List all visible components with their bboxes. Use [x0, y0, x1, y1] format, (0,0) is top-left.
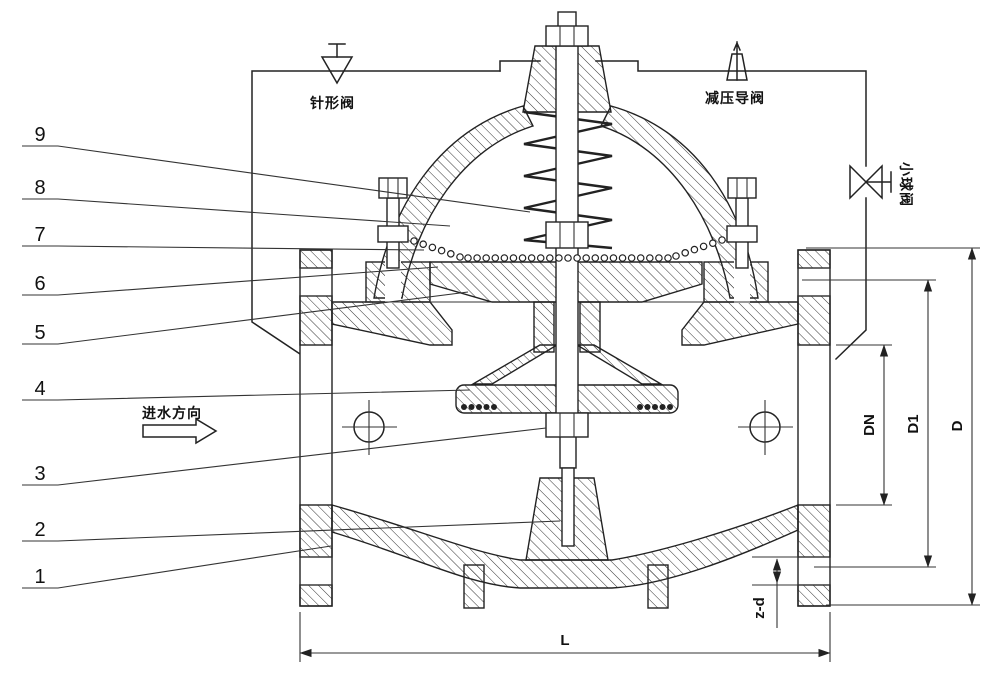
part-leaders: 9 8 7 6 5 4 3 2 1: [22, 124, 560, 588]
body-upper-wall-right: [682, 302, 798, 345]
body-left-rib: [464, 565, 484, 608]
needle-valve-icon: [322, 44, 352, 83]
pilot-valve-label: 减压导阀: [705, 90, 765, 106]
ball-valve-icon: [850, 166, 891, 198]
leader-2: [22, 521, 560, 541]
funnel-right: [577, 345, 661, 384]
right-flange: [798, 250, 830, 606]
zd-label: z-d: [751, 597, 768, 619]
leader-4: [22, 390, 470, 400]
leader-3: [22, 428, 546, 485]
part-number-7: 7: [34, 224, 45, 246]
part-number-9: 9: [34, 124, 45, 146]
pilot-valve-icon: [727, 42, 747, 80]
flow-direction-label: 进水方向: [142, 405, 202, 421]
dimension-zd: z-d: [751, 557, 798, 628]
part-number-5: 5: [34, 322, 45, 344]
part-number-8: 8: [34, 177, 45, 199]
drawing-canvas: 针形阀 减压导阀 小球阀: [0, 0, 1000, 682]
spring-nut: [546, 222, 588, 248]
part-number-3: 3: [34, 463, 45, 485]
needle-valve-label: 针形阀: [309, 95, 355, 111]
dn-label: DN: [861, 414, 878, 436]
ball-valve-label: 小球阀: [898, 162, 914, 207]
leader-8: [22, 199, 450, 226]
pilot-pipe-right: [596, 61, 866, 166]
part-number-2: 2: [34, 519, 45, 541]
pilot-pipe-down: [836, 198, 866, 359]
dimension-dn: DN: [836, 345, 892, 505]
body-right-rib: [648, 565, 668, 608]
stem-tip: [562, 468, 574, 546]
top-hex-nut: [546, 26, 588, 46]
d1-label: D1: [905, 414, 922, 433]
flow-direction: 进水方向: [142, 405, 216, 443]
leader-7: [22, 246, 424, 250]
leader-1: [22, 546, 331, 588]
funnel-left: [473, 345, 557, 384]
valve-engineering-drawing: 针形阀 减压导阀 小球阀: [0, 0, 1000, 682]
flow-arrow-icon: [143, 419, 216, 443]
part-number-4: 4: [34, 378, 45, 400]
left-flange: [300, 250, 332, 606]
part-number-1: 1: [34, 566, 45, 588]
part-number-6: 6: [34, 273, 45, 295]
l-label: L: [560, 632, 569, 649]
body-upper-wall-left: [332, 302, 452, 345]
dimension-d: D: [806, 248, 980, 605]
d-label: D: [949, 420, 966, 431]
bolt-hole-right: [738, 400, 793, 455]
disc-nut: [546, 413, 588, 437]
